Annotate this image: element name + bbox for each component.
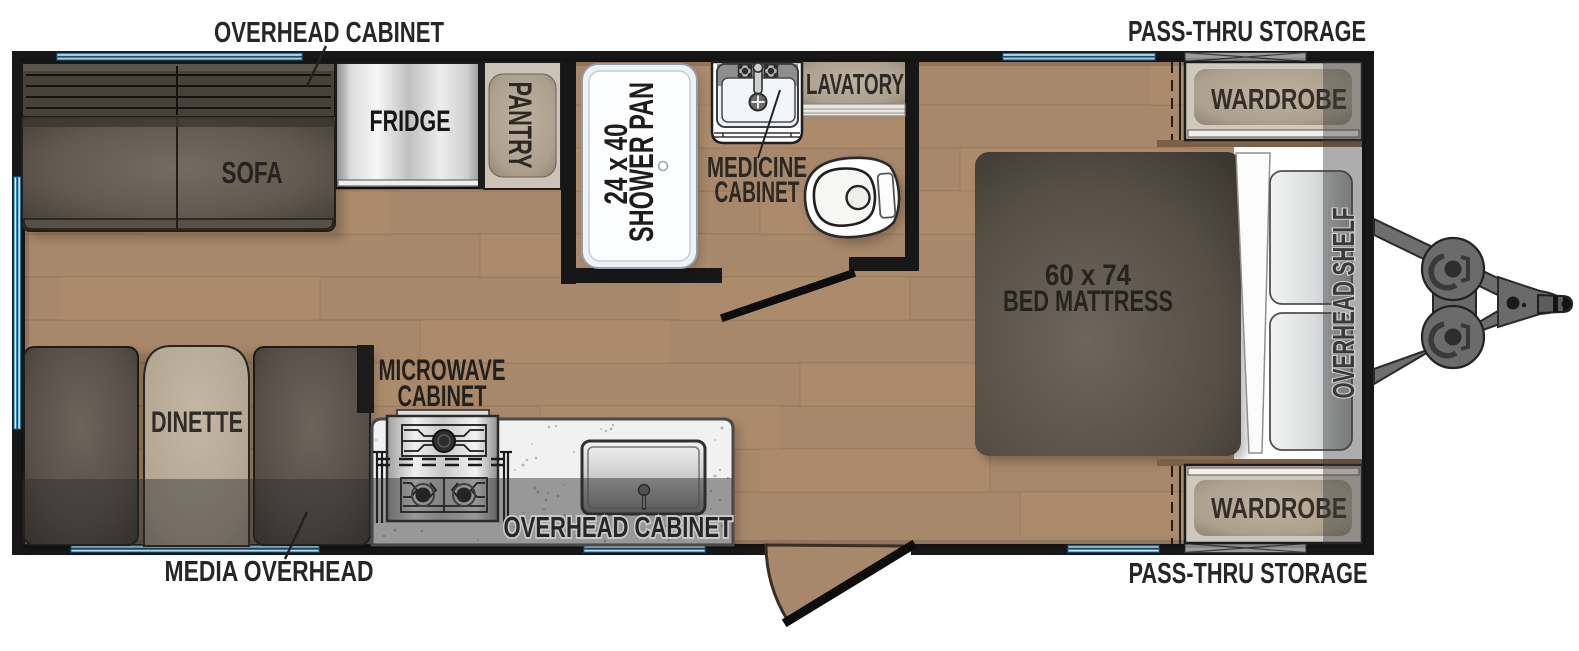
svg-text:CABINET: CABINET [715, 176, 800, 209]
svg-text:LAVATORY: LAVATORY [806, 69, 904, 101]
svg-text:MEDIA OVERHEAD: MEDIA OVERHEAD [165, 556, 374, 588]
svg-text:SOFA: SOFA [222, 155, 283, 190]
svg-text:CABINET: CABINET [398, 380, 487, 413]
svg-text:SHOWER PAN: SHOWER PAN [623, 82, 661, 242]
svg-text:FRIDGE: FRIDGE [370, 105, 451, 138]
svg-text:PANTRY: PANTRY [502, 82, 538, 169]
svg-text:OVERHEAD SHELF: OVERHEAD SHELF [1326, 208, 1361, 399]
svg-text:OVERHEAD CABINET: OVERHEAD CABINET [504, 512, 733, 544]
svg-text:BED MATTRESS: BED MATTRESS [1003, 285, 1173, 318]
svg-text:OVERHEAD CABINET: OVERHEAD CABINET [214, 17, 444, 49]
svg-text:PASS-THRU STORAGE: PASS-THRU STORAGE [1129, 558, 1368, 590]
svg-text:PASS-THRU STORAGE: PASS-THRU STORAGE [1128, 16, 1366, 48]
svg-text:DINETTE: DINETTE [151, 406, 243, 439]
